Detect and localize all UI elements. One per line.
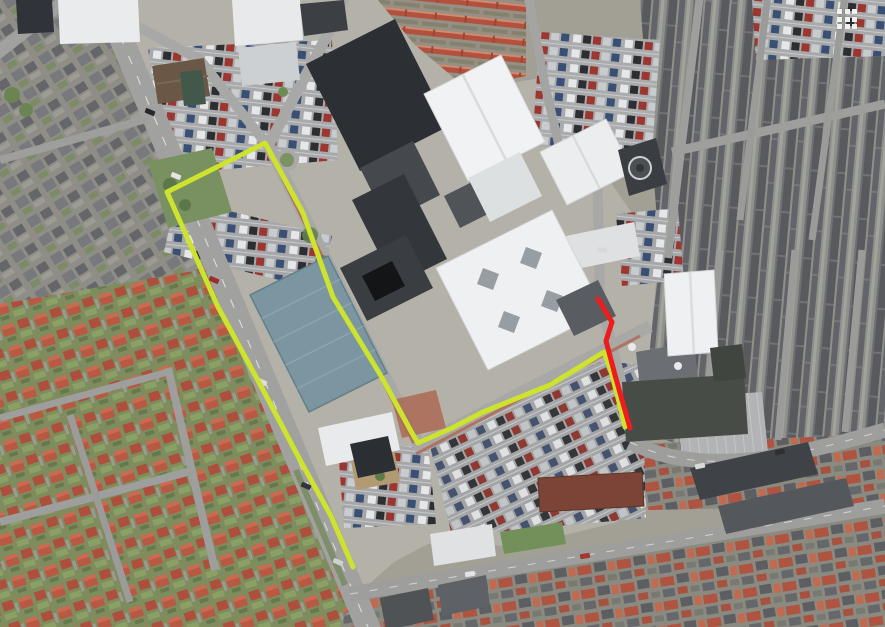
- apps-grid-cell: [837, 9, 842, 14]
- apps-grid-cell: [845, 9, 850, 14]
- map-viewport: [0, 0, 885, 627]
- apps-grid-cell: [837, 24, 842, 29]
- apps-grid-cell: [845, 24, 850, 29]
- satellite-map-canvas[interactable]: [0, 0, 885, 627]
- apps-grid-cell: [837, 17, 842, 22]
- apps-grid-cell: [852, 9, 857, 14]
- apps-grid-icon[interactable]: [837, 9, 857, 29]
- apps-grid-cell: [852, 24, 857, 29]
- apps-grid-cell: [845, 17, 850, 22]
- apps-grid-cell: [852, 17, 857, 22]
